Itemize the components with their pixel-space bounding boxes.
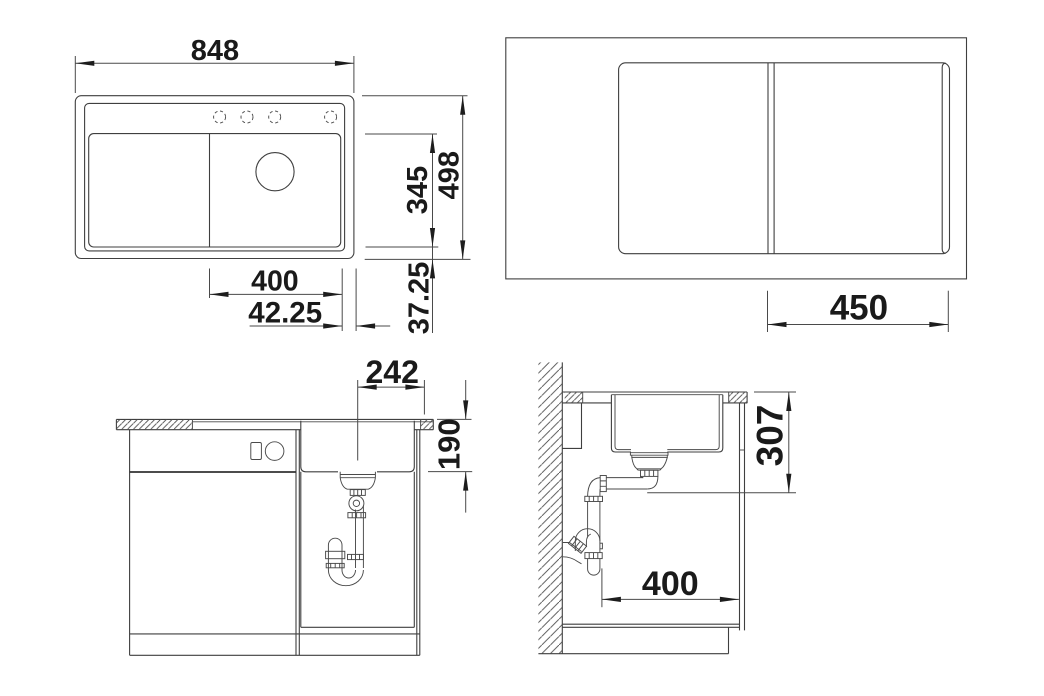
svg-text:190: 190 bbox=[431, 418, 466, 470]
svg-text:345: 345 bbox=[402, 166, 434, 214]
svg-text:37.25: 37.25 bbox=[403, 262, 435, 335]
svg-text:307: 307 bbox=[750, 405, 791, 467]
svg-text:848: 848 bbox=[191, 35, 239, 67]
svg-text:498: 498 bbox=[434, 151, 466, 199]
svg-text:450: 450 bbox=[830, 288, 888, 327]
svg-text:400: 400 bbox=[251, 266, 299, 298]
svg-text:42.25: 42.25 bbox=[248, 297, 322, 330]
svg-text:242: 242 bbox=[366, 354, 419, 390]
svg-text:400: 400 bbox=[642, 565, 699, 603]
